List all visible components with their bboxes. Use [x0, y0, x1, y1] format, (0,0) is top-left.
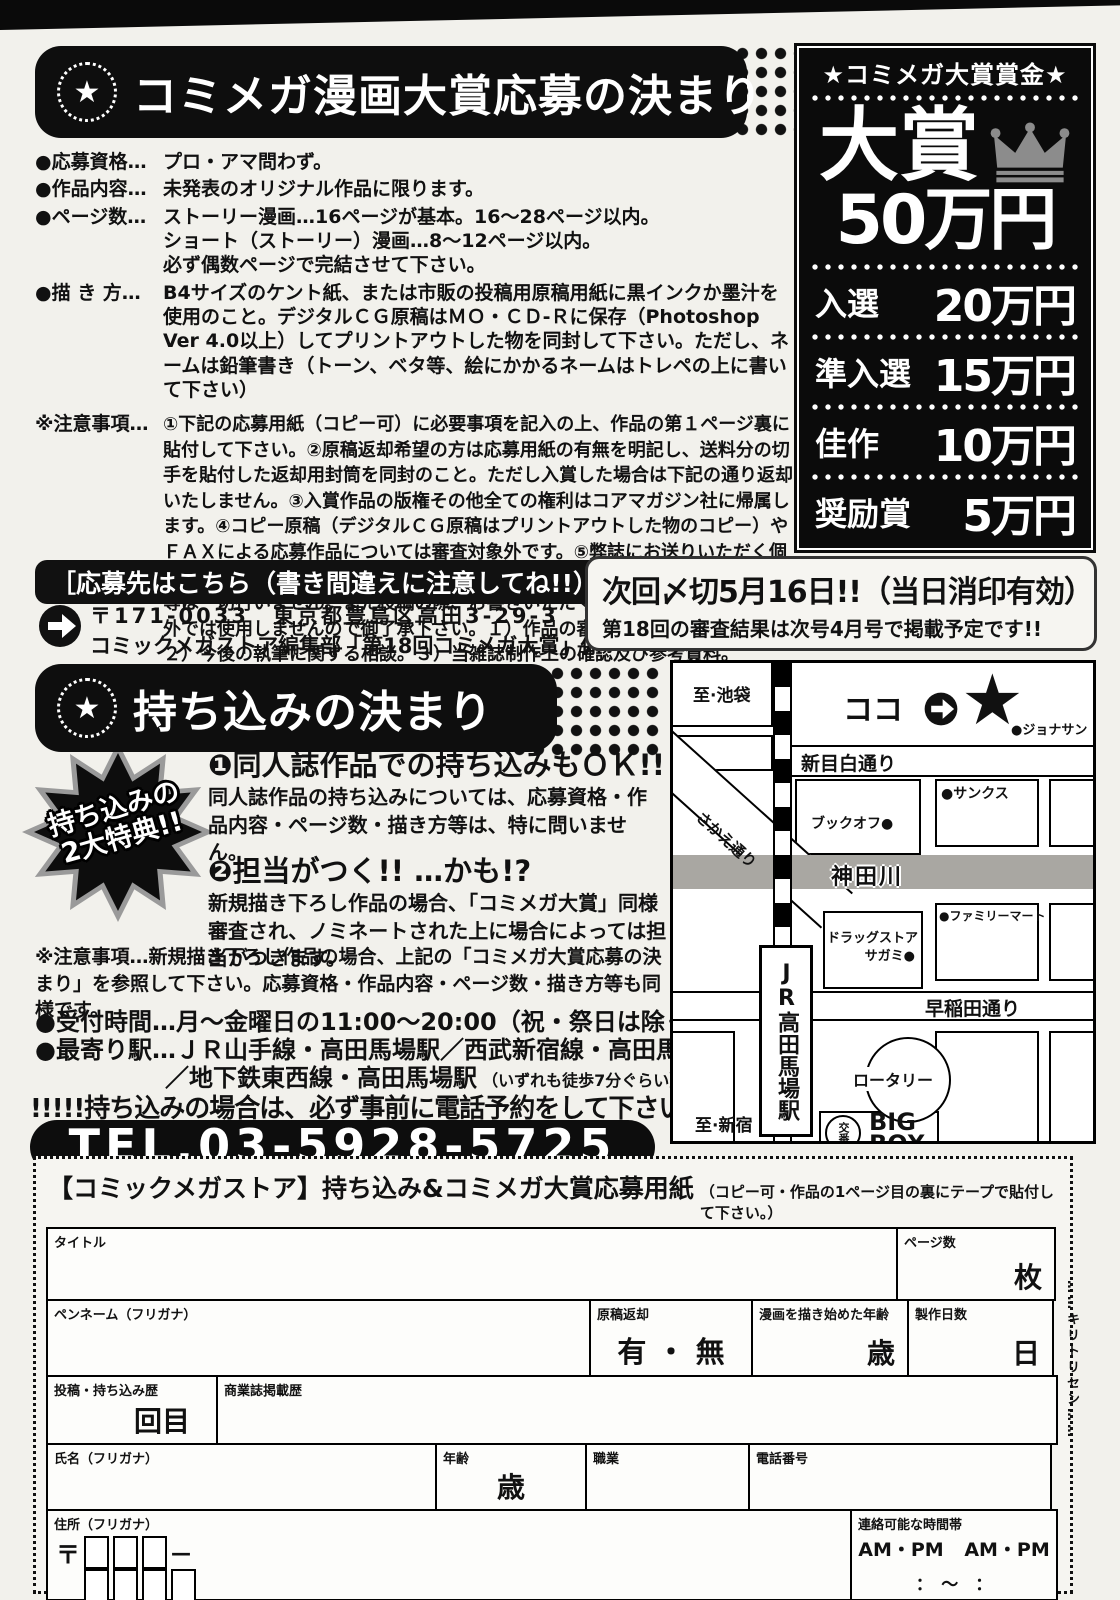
field-job-label: 職業 — [593, 1448, 619, 1467]
field-pages-unit: 枚 — [1014, 1256, 1042, 1296]
prize-tier-row: 佳作 10万円 — [799, 411, 1091, 473]
crown-icon — [989, 120, 1071, 184]
form-row-2: ペンネーム（フリガナ） 原稿返却 有 ・ 無 漫画を描き始めた年齢 歳 製作日数… — [48, 1301, 1060, 1377]
takadanobaba-station-box: JR高田馬場駅 — [759, 945, 813, 1137]
rule-item-pages: ●ページ数… ストーリー漫画…16ページが基本。16〜28ページ以内。 ショート… — [35, 205, 793, 278]
form-header: 【コミックメガストア】持ち込み&コミメガ大賞応募用紙 （コピー可・作品の1ページ… — [48, 1169, 1060, 1223]
star-badge-icon: ★ — [57, 678, 117, 738]
field-contact-hours: 連絡可能な時間帯 AM・PM AM・PM ： 〜 ： — [850, 1509, 1058, 1600]
tier-label: 入選 — [815, 279, 879, 325]
field-name-label: 氏名（フリガナ） — [54, 1448, 158, 1467]
rule-label: ●応募資格… — [35, 150, 163, 174]
map-label-sunkus: ●サンクス — [941, 783, 1009, 803]
prize-tier-row: 奨励賞 5万円 — [799, 481, 1091, 543]
field-age: 年齢 歳 — [435, 1443, 587, 1511]
map-label-drugstore2: サガミ● — [827, 945, 915, 964]
tier-amount: 15万円 — [934, 340, 1075, 404]
award-rules-banner: ★ コミメガ漫画大賞応募の決まり — [35, 46, 747, 138]
award-rules-title: コミメガ漫画大賞応募の決まり — [133, 60, 763, 124]
postal-box — [142, 1536, 167, 1569]
rule-item-drawing: ●描 き 方… B4サイズのケント紙、または市販の投稿用原稿用紙に黒インクか墨汁… — [35, 281, 793, 403]
form-row-1: タイトル ページ数 枚 — [48, 1229, 1060, 1301]
postal-dash: — — [171, 1541, 191, 1565]
postal-mark: 〒 — [56, 1535, 80, 1570]
field-age-started: 漫画を描き始めた年齢 歳 — [751, 1299, 909, 1377]
map-label-to-ikebukuro: 至·池袋 — [693, 681, 750, 706]
field-manuscript-return: 原稿返却 有 ・ 無 — [589, 1299, 753, 1377]
prize-panel-header: ★コミメガ大賞賞金★ — [799, 48, 1091, 94]
field-phone: 電話番号 — [748, 1443, 1052, 1511]
prize-tier-row: 準入選 15万円 — [799, 341, 1091, 403]
scan-edge-artifact — [0, 0, 1120, 30]
road-waseda — [673, 991, 1093, 1021]
contact-time-row: ： 〜 ： — [852, 1570, 1056, 1595]
field-published-label: 商業誌掲載歴 — [224, 1380, 302, 1399]
field-pages-label: ページ数 — [904, 1232, 956, 1251]
field-penname-label: ペンネーム（フリガナ） — [54, 1304, 196, 1323]
map-label-kandagawa: 神田川 — [831, 859, 903, 891]
postal-code-row2 — [84, 1569, 200, 1600]
form-row-3: 投稿・持ち込み歴 回目 商業誌掲載歴 — [48, 1377, 1060, 1445]
grand-prize-label: 大賞 — [819, 108, 979, 184]
rule-item-qualification: ●応募資格… プロ・アマ問わず。 — [35, 150, 793, 174]
walkin-item2-title: ❷担当がつく!! …かも!? — [208, 848, 531, 890]
map-label-jonathan: ●ジョナサン — [1011, 719, 1087, 738]
map-label-bookoff: ブックオフ● — [811, 813, 893, 833]
address-lines: 〒171-0033 東京都豊島区高田3-29-3 3F コミックメガストア編集部… — [90, 600, 618, 660]
field-address: 住所（フリガナ） 〒 — — [46, 1509, 852, 1600]
address-line2: コミックメガストア編集部「第18回コミメガ大賞」係 — [90, 630, 618, 660]
map-block — [1049, 903, 1096, 981]
rule-line: ショート（ストーリー）漫画…8〜12ページ以内。 — [163, 229, 660, 253]
grand-prize-row: 大賞 — [799, 108, 1091, 184]
star-badge-icon: ★ — [57, 62, 117, 122]
map-block — [935, 1031, 1039, 1144]
tier-amount: 5万円 — [962, 480, 1075, 544]
rule-text: B4サイズのケント紙、または市販の投稿用原稿用紙に黒インクか墨汁を使用のこと。デ… — [163, 281, 793, 403]
deadline-line2: 第18回の審査結果は次号4月号で掲載予定です!! — [602, 613, 1080, 642]
tier-label: 佳作 — [815, 419, 879, 465]
access-map: 至·池袋 ココ ★ ●ジョナサン 新目白通り ●サンクス ブックオフ● 神田川 … — [670, 660, 1096, 1144]
field-age-label: 年齢 — [443, 1448, 469, 1467]
address-line1: 〒171-0033 東京都豊島区高田3-29-3 3F — [90, 600, 618, 630]
field-history-label: 投稿・持ち込み歴 — [54, 1380, 158, 1399]
tier-amount: 20万円 — [934, 270, 1075, 334]
field-days-unit: 日 — [1012, 1332, 1040, 1372]
postal-box — [84, 1536, 109, 1569]
deadline-line1: 次回〆切5月16日!!（当日消印有効） — [602, 567, 1080, 611]
station-name: JR高田馬場駅 — [770, 961, 802, 1121]
walkin-note-label: ※注意事項 — [35, 946, 129, 968]
address-block: ［応募先はこちら（書き間違えに注意してね!!）］ — [35, 560, 627, 604]
tier-amount: 10万円 — [934, 410, 1075, 474]
arrow-icon — [38, 604, 82, 648]
field-return-label: 原稿返却 — [597, 1304, 649, 1323]
grand-prize-amount: 50万円 — [799, 186, 1091, 255]
map-label-koko: ココ — [843, 685, 903, 729]
prize-panel: ★コミメガ大賞賞金★ 大賞 50万円 入選 20万円 準入選 15万円 佳作 1… — [797, 46, 1093, 550]
rule-line: 必ず偶数ページで完結させて下さい。 — [163, 253, 660, 277]
rule-label: ●描 き 方… — [35, 281, 163, 403]
walkin-title: 持ち込みの決まり — [133, 676, 493, 740]
postal-box — [142, 1569, 167, 1600]
postal-box — [113, 1569, 138, 1600]
map-label-bigbox: BIG BOX — [869, 1111, 925, 1144]
field-name: 氏名（フリガナ） — [46, 1443, 437, 1511]
field-contact-label: 連絡可能な時間帯 — [858, 1514, 962, 1533]
field-age-started-unit: 歳 — [867, 1332, 895, 1372]
rule-text: 未発表のオリジナル作品に限ります。 — [163, 177, 484, 201]
application-form: 【コミックメガストア】持ち込み&コミメガ大賞応募用紙 （コピー可・作品の1ページ… — [33, 1156, 1073, 1594]
map-label-waseda: 早稲田通り — [925, 994, 1020, 1021]
koban-circle: 交番 — [825, 1115, 861, 1144]
map-label-drugstore1: ドラッグストア — [827, 927, 915, 946]
form-table: タイトル ページ数 枚 ペンネーム（フリガナ） 原稿返却 有 ・ 無 漫画を描き… — [48, 1229, 1060, 1600]
form-title-note: （コピー可・作品の1ページ目の裏にテープで貼付して下さい。） — [700, 1181, 1060, 1223]
map-label-to-shinjuku: 至·新宿 — [695, 1111, 752, 1136]
field-history-unit: 回目 — [134, 1400, 190, 1440]
map-block — [1049, 1031, 1096, 1144]
field-address-label: 住所（フリガナ） — [54, 1514, 158, 1533]
field-title-label: タイトル — [54, 1232, 106, 1251]
prize-tier-row: 入選 20万円 — [799, 271, 1091, 333]
map-label-rotary: ロータリー — [853, 1067, 933, 1091]
tier-label: 準入選 — [815, 349, 911, 395]
field-days-label: 製作日数 — [915, 1304, 967, 1323]
field-age-started-label: 漫画を描き始めた年齢 — [759, 1304, 889, 1323]
tier-label: 奨励賞 — [815, 489, 911, 535]
map-label-familymart: ●ファミリーマート — [939, 907, 1045, 924]
postal-box — [84, 1569, 109, 1600]
walkin-banner: ★ 持ち込みの決まり — [35, 664, 557, 752]
map-block — [1049, 779, 1096, 847]
rule-item-content: ●作品内容… 未発表のオリジナル作品に限ります。 — [35, 177, 793, 201]
map-arrow-icon — [923, 691, 959, 731]
contact-ampm-row: AM・PM AM・PM — [852, 1535, 1056, 1562]
form-row-5: 住所（フリガナ） 〒 — 連絡可能な時間帯 AM・PM AM・PM — [48, 1511, 1060, 1600]
field-penname: ペンネーム（フリガナ） — [46, 1299, 591, 1377]
field-title: タイトル — [46, 1227, 898, 1301]
field-pages: ページ数 枚 — [896, 1227, 1056, 1301]
contact-ampm2: AM・PM — [964, 1539, 1049, 1561]
rule-text: プロ・アマ問わず。 — [163, 150, 332, 174]
postal-box — [171, 1569, 196, 1600]
map-label-shinmejiro: 新目白通り — [801, 749, 896, 776]
rule-text: ストーリー漫画…16ページが基本。16〜28ページ以内。 ショート（ストーリー）… — [163, 205, 660, 278]
field-published-history: 商業誌掲載歴 — [216, 1375, 1058, 1445]
field-phone-label: 電話番号 — [756, 1448, 808, 1467]
address-header: ［応募先はこちら（書き間違えに注意してね!!）］ — [35, 560, 627, 604]
form-row-4: 氏名（フリガナ） 年齢 歳 職業 電話番号 — [48, 1445, 1060, 1511]
item2-title-text: ❷担当がつく!! …かも!? — [208, 854, 531, 888]
rule-line: ストーリー漫画…16ページが基本。16〜28ページ以内。 — [163, 205, 660, 229]
field-production-days: 製作日数 日 — [907, 1299, 1054, 1377]
field-job: 職業 — [585, 1443, 750, 1511]
cutline-text: ……キリトリセン…… — [1062, 1280, 1081, 1440]
field-age-unit: 歳 — [497, 1466, 525, 1506]
bigbox-line2: BOX — [869, 1133, 925, 1144]
walkin-badge: 持ち込みの 2大特典!! — [22, 742, 214, 922]
postal-code-row1: 〒 — — [56, 1535, 191, 1570]
rule-label: ●ページ数… — [35, 205, 163, 278]
form-title: 【コミックメガストア】持ち込み&コミメガ大賞応募用紙 — [48, 1169, 694, 1205]
contact-ampm1: AM・PM — [858, 1539, 943, 1561]
magazine-contest-page: ★ コミメガ漫画大賞応募の決まり ●応募資格… プロ・アマ問わず。 ●作品内容…… — [0, 0, 1120, 1600]
field-submission-history: 投稿・持ち込み歴 回目 — [46, 1375, 218, 1445]
postal-box — [113, 1536, 138, 1569]
deadline-box: 次回〆切5月16日!!（当日消印有効） 第18回の審査結果は次号4月号で掲載予定… — [585, 556, 1097, 651]
rule-label: ●作品内容… — [35, 177, 163, 201]
map-label-koban: 交番 — [835, 1122, 851, 1144]
